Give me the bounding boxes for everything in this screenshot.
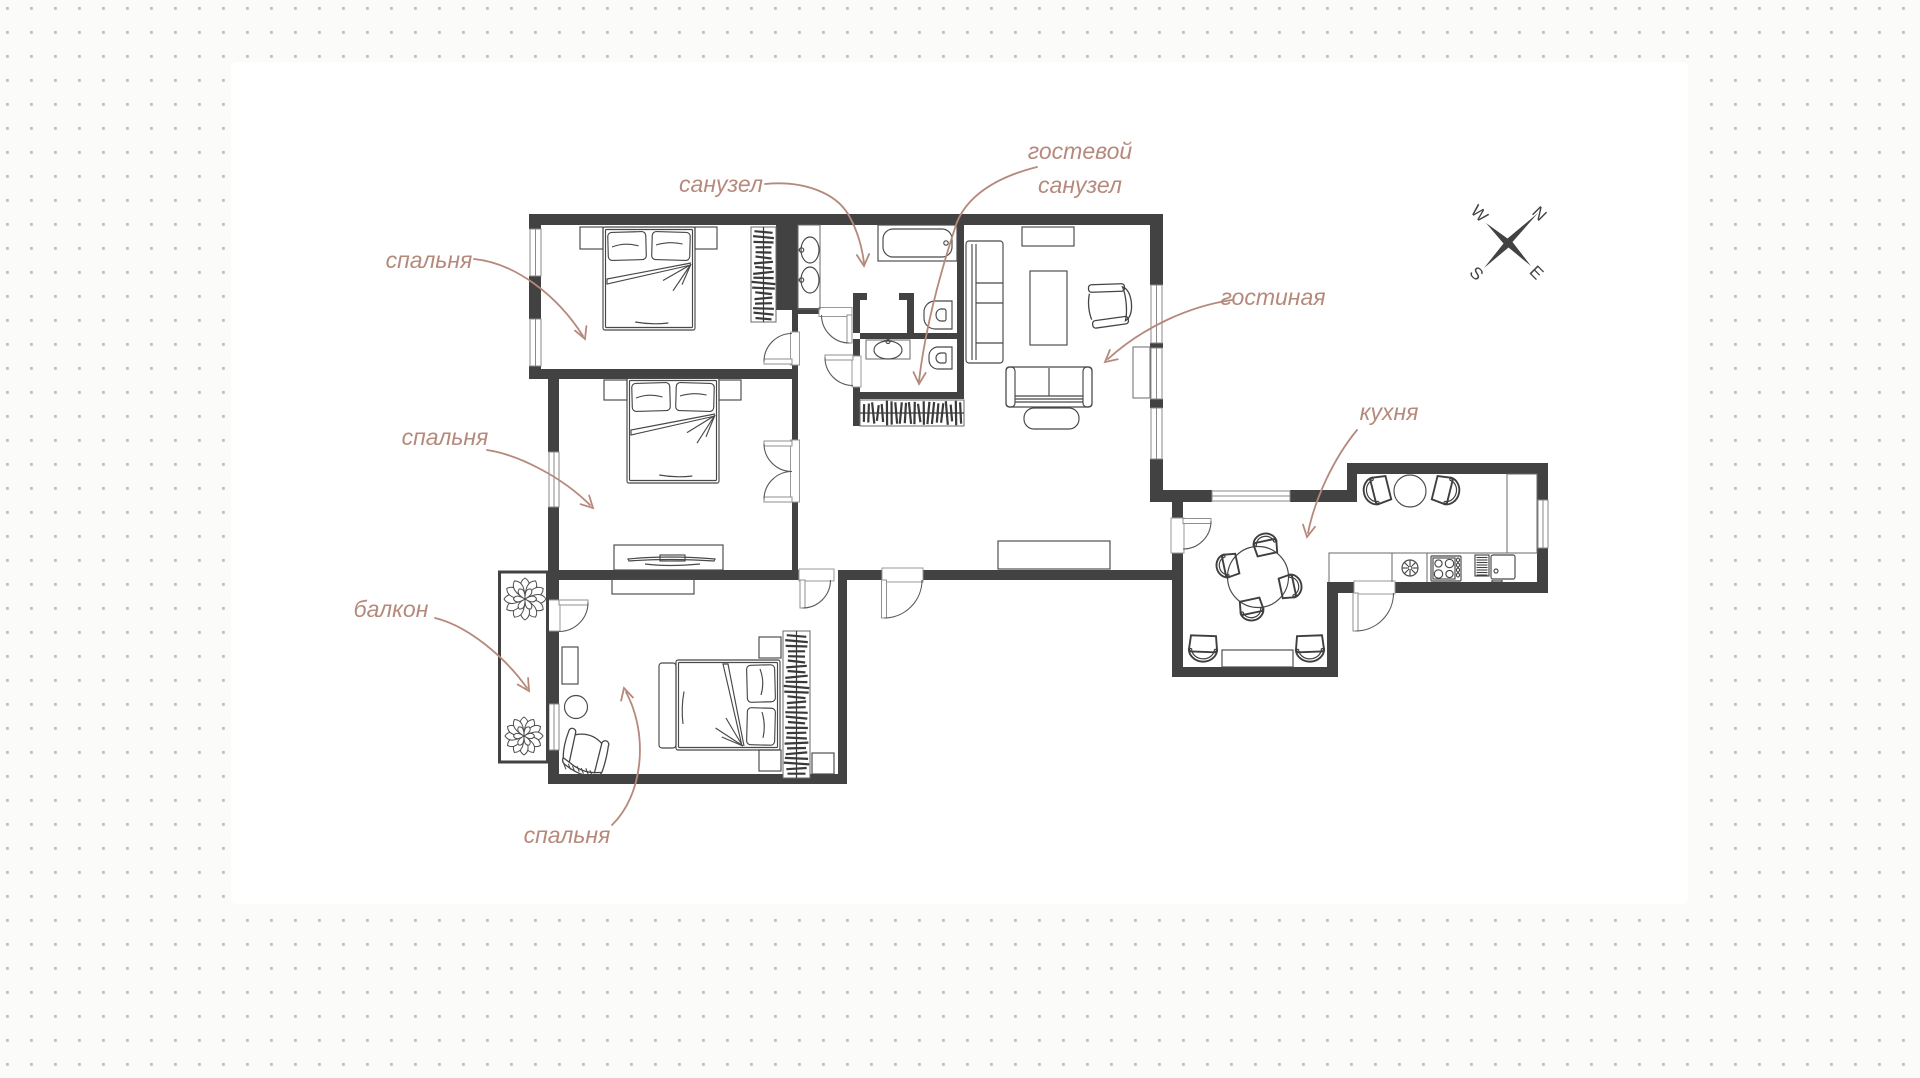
svg-text:спальня: спальня	[524, 822, 611, 848]
svg-text:кухня: кухня	[1360, 399, 1419, 425]
svg-text:гостевой: гостевой	[1028, 138, 1133, 164]
svg-text:санузел: санузел	[679, 171, 763, 197]
svg-text:балкон: балкон	[354, 596, 429, 622]
svg-text:гостиная: гостиная	[1220, 284, 1325, 310]
svg-text:спальня: спальня	[386, 247, 473, 273]
svg-text:спальня: спальня	[402, 424, 489, 450]
svg-text:санузел: санузел	[1038, 172, 1122, 198]
